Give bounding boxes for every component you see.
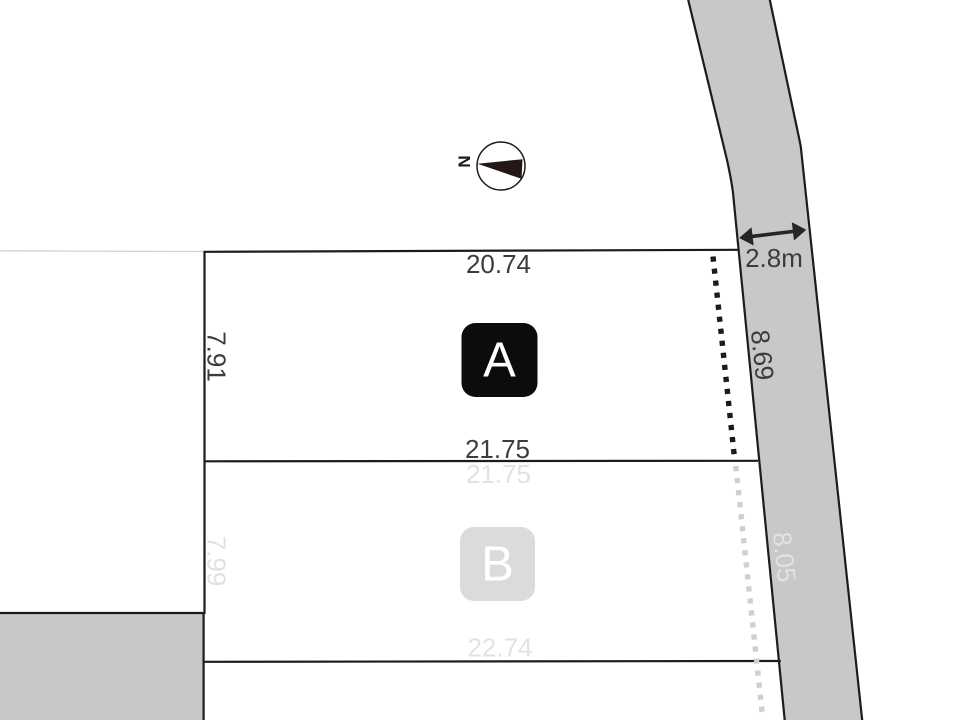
svg-text:B: B [481, 538, 514, 592]
svg-text:7.99: 7.99 [202, 536, 232, 587]
svg-text:7.91: 7.91 [202, 331, 232, 382]
svg-text:8.69: 8.69 [745, 328, 780, 381]
svg-text:A: A [483, 334, 516, 388]
svg-text:22.74: 22.74 [467, 633, 532, 663]
svg-text:8.05: 8.05 [767, 530, 802, 583]
svg-text:20.74: 20.74 [466, 249, 531, 279]
svg-text:2.8m: 2.8m [745, 243, 803, 273]
svg-text:21.75: 21.75 [466, 459, 531, 489]
svg-text:N: N [455, 155, 474, 167]
